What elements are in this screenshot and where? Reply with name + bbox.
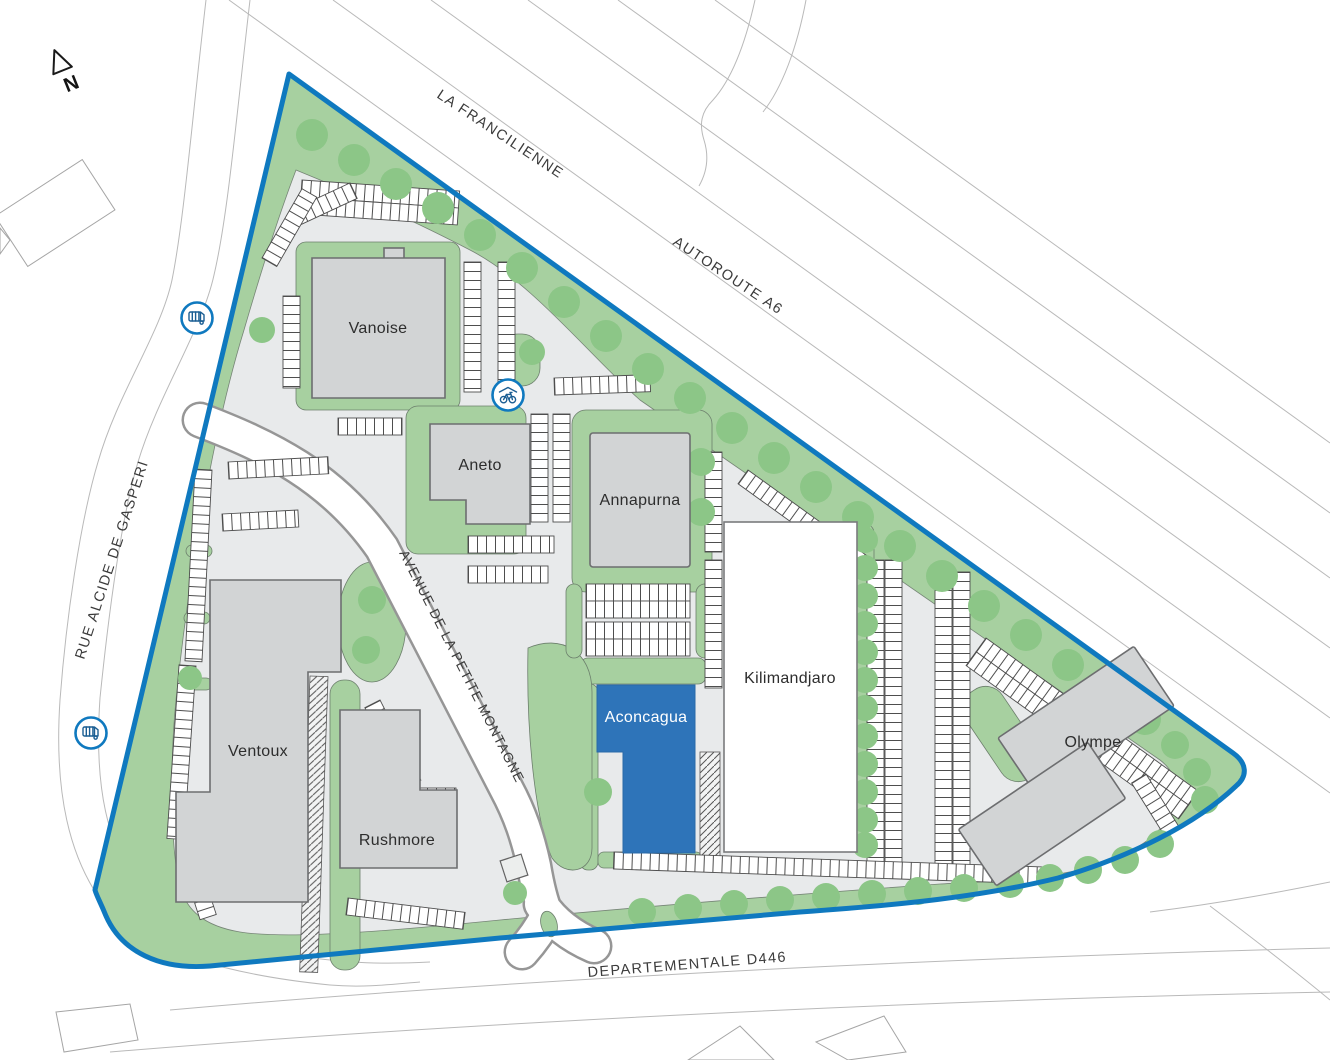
- bike-shelter-icon: [493, 380, 524, 411]
- building-annapurna[interactable]: Annapurna: [590, 433, 690, 567]
- building-label-kilimandjaro: Kilimandjaro: [744, 670, 836, 687]
- building-label-vanoise: Vanoise: [349, 320, 408, 337]
- building-label-ventoux: Ventoux: [228, 743, 288, 760]
- building-label-rushmore: Rushmore: [359, 832, 435, 849]
- site-plan-map: Vanoise Aneto Annapurna Kilimandjaro Aco…: [0, 0, 1330, 1060]
- building-label-annapurna: Annapurna: [600, 492, 681, 509]
- bus-stop-icon: [76, 718, 107, 749]
- building-label-aneto: Aneto: [458, 457, 501, 474]
- bus-stop-icon: [182, 303, 213, 334]
- building-kilimandjaro[interactable]: Kilimandjaro: [724, 522, 857, 852]
- building-label-olympe: Olympe: [1065, 734, 1122, 751]
- building-vanoise[interactable]: Vanoise: [312, 248, 445, 398]
- building-label-aconcagua: Aconcagua: [605, 709, 688, 726]
